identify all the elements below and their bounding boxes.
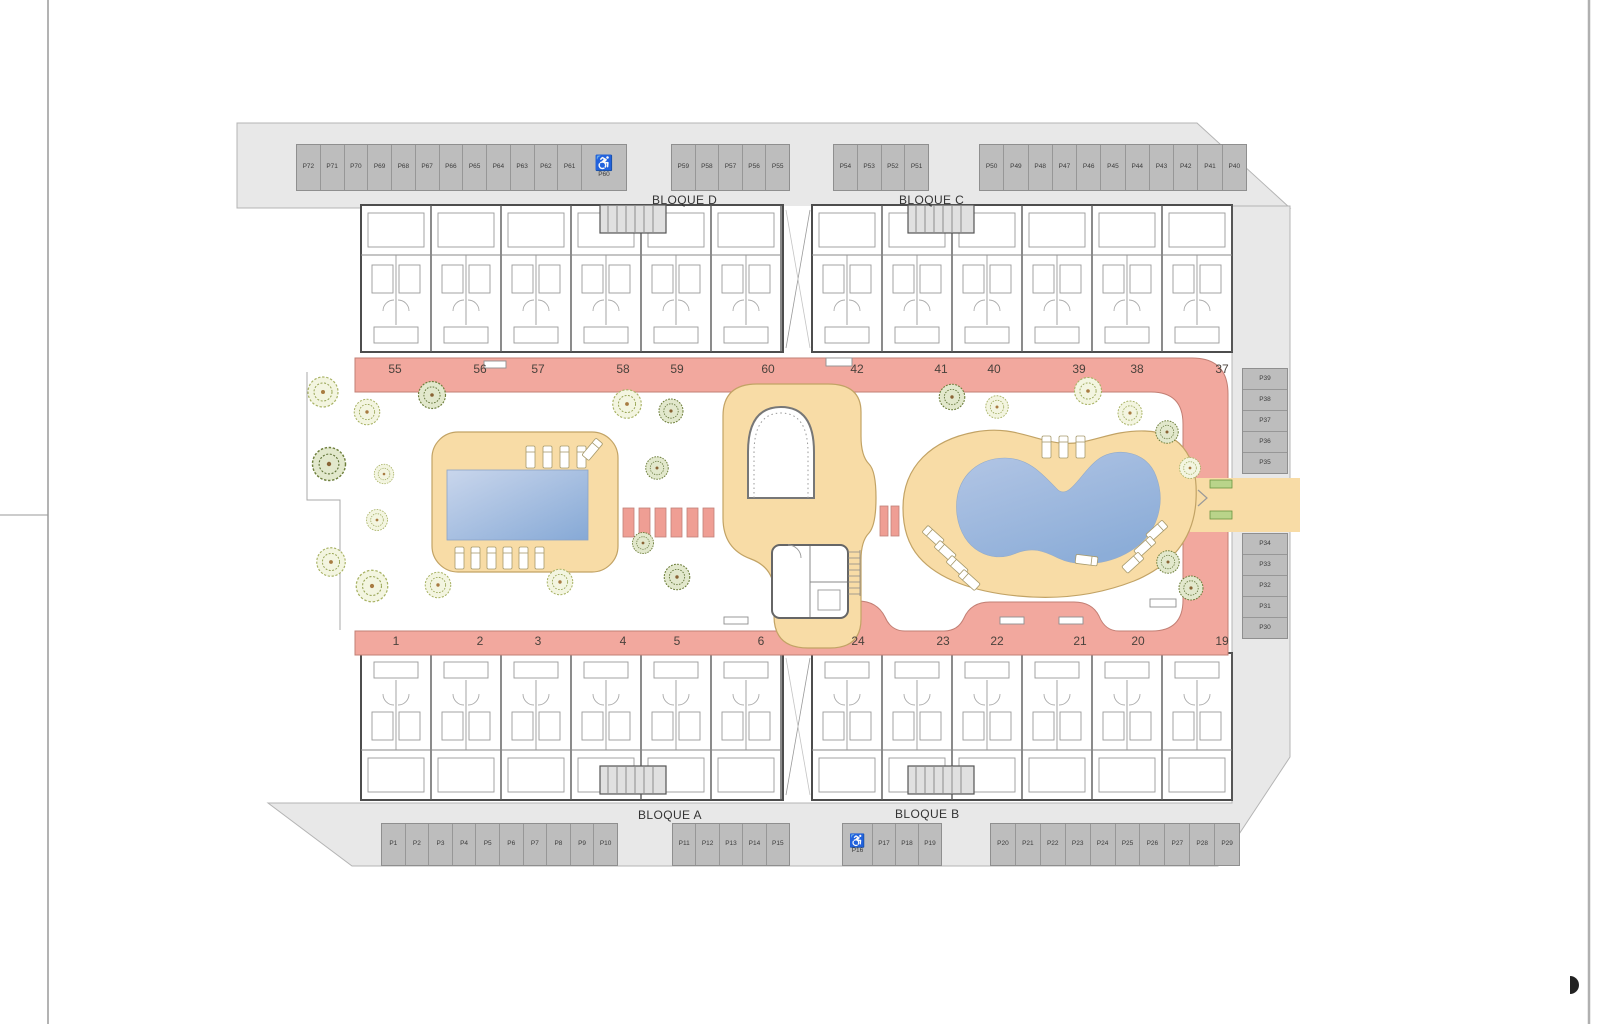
parking-stall: P34 — [1243, 534, 1287, 555]
parking-group-right-lower: P34P33P32P31P30 — [1242, 533, 1288, 639]
block-label-bloque-c: BLOQUE C — [899, 193, 964, 207]
parking-group-right-upper: P39P38P37P36P35 — [1242, 368, 1288, 474]
parking-stall-label: P72 — [303, 164, 315, 171]
parking-stall: P67 — [416, 145, 440, 190]
unit-number: 19 — [1207, 634, 1237, 648]
parking-stall-label: P8 — [554, 841, 562, 848]
parking-stall: P31 — [1243, 597, 1287, 618]
parking-stall: P49 — [1004, 145, 1028, 190]
unit-number: 39 — [1064, 362, 1094, 376]
parking-stall-label: P29 — [1221, 841, 1233, 848]
parking-stall-label: P46 — [1083, 164, 1095, 171]
parking-stall: P28 — [1190, 824, 1215, 865]
tree-icon — [939, 384, 965, 410]
wheelchair-icon: ♿ — [595, 156, 614, 171]
tree-icon — [1179, 576, 1203, 600]
parking-stall: P38 — [1243, 390, 1287, 411]
parking-stall: P32 — [1243, 576, 1287, 597]
parking-stall-label: P14 — [749, 841, 761, 848]
parking-stall-label: P26 — [1147, 841, 1159, 848]
parking-group-top-right: P50P49P48P47P46P45P44P43P42P41P40 — [979, 144, 1247, 191]
parking-stall: P29 — [1215, 824, 1239, 865]
parking-stall-label: P33 — [1259, 562, 1271, 569]
parking-stall-label: P63 — [516, 164, 528, 171]
tree-icon — [374, 464, 394, 484]
pool-house — [772, 545, 860, 618]
tree-icon — [547, 569, 573, 595]
unit-number: 1 — [381, 634, 411, 648]
parking-stall: P53 — [858, 145, 882, 190]
building-bloque-a — [361, 653, 783, 800]
unit-number: 5 — [662, 634, 692, 648]
parking-group-bottom-right: P20P21P22P23P24P25P26P27P28P29 — [990, 823, 1240, 866]
parking-stall-handicap: ♿ P60 — [581, 145, 626, 190]
planter — [1210, 480, 1232, 488]
parking-stall-label: P38 — [1259, 397, 1271, 404]
tree-icon — [1157, 551, 1180, 574]
parking-group-bottom-handicap: ♿ P16 P17P18P19 — [842, 823, 942, 866]
parking-stall-label: P52 — [887, 164, 899, 171]
unit-number: 59 — [662, 362, 692, 376]
tree-icon — [1118, 401, 1142, 425]
parking-stall-label: P55 — [772, 164, 784, 171]
parking-stall-label: P7 — [531, 841, 539, 848]
right-pool-area — [903, 430, 1196, 597]
unit-number: 23 — [928, 634, 958, 648]
parking-stall-label: P53 — [863, 164, 875, 171]
parking-stall-label: P34 — [1259, 541, 1271, 548]
parking-stall: P20 — [991, 824, 1016, 865]
left-pool-area — [432, 432, 618, 572]
stair-core-bloque-b — [908, 766, 974, 794]
parking-stall-label: P17 — [878, 841, 890, 848]
parking-group-top-mid2: P54P53P52P51 — [833, 144, 929, 191]
parking-stall: P23 — [1066, 824, 1091, 865]
parking-stall: P30 — [1243, 618, 1287, 638]
parking-stall-label: P10 — [600, 841, 612, 848]
passage-bottom — [784, 655, 811, 798]
parking-stall: P12 — [696, 824, 719, 865]
unit-number: 24 — [843, 634, 873, 648]
parking-stall: P26 — [1140, 824, 1165, 865]
parking-stall-label: P70 — [350, 164, 362, 171]
parking-stall: P33 — [1243, 555, 1287, 576]
wheelchair-icon: ♿ — [849, 834, 865, 847]
unit-number: 21 — [1065, 634, 1095, 648]
site-plan-drawing — [0, 0, 1600, 1024]
parking-stall-label: P5 — [484, 841, 492, 848]
stair-core-bloque-d — [600, 205, 666, 233]
unit-number: 6 — [746, 634, 776, 648]
parking-stall-label: P9 — [578, 841, 586, 848]
tree-icon — [646, 457, 669, 480]
parking-stall: P63 — [511, 145, 535, 190]
tree-icon — [313, 448, 346, 481]
unit-number: 57 — [523, 362, 553, 376]
parking-stall-label: P2 — [413, 841, 421, 848]
parking-stall: P59 — [672, 145, 696, 190]
parking-stall-label: P42 — [1180, 164, 1192, 171]
parking-stall: P37 — [1243, 411, 1287, 432]
site-plan: P72P71P70P69P68P67P66P65P64P63P62P61 ♿ P… — [0, 0, 1600, 1024]
parking-stall: P14 — [743, 824, 766, 865]
tree-icon — [633, 533, 654, 554]
parking-stall-label: P43 — [1156, 164, 1168, 171]
parking-stall: P52 — [882, 145, 906, 190]
parking-stall: P71 — [321, 145, 345, 190]
site-boundary-left — [307, 372, 340, 630]
parking-stall: P62 — [535, 145, 559, 190]
parking-stall: P68 — [392, 145, 416, 190]
tree-icon — [1156, 421, 1179, 444]
parking-stall-label: P30 — [1259, 625, 1271, 632]
parking-group-top-left: P72P71P70P69P68P67P66P65P64P63P62P61 ♿ P… — [296, 144, 627, 191]
page-nav-marker[interactable] — [1570, 976, 1579, 994]
parking-stall-label: P6 — [507, 841, 515, 848]
parking-stall: P15 — [767, 824, 789, 865]
parking-stall-label: P44 — [1131, 164, 1143, 171]
parking-stall: P6 — [500, 824, 524, 865]
tree-icon — [1180, 458, 1201, 479]
parking-stall-label: P20 — [997, 841, 1009, 848]
tree-icon — [367, 510, 388, 531]
parking-stall-label: P49 — [1010, 164, 1022, 171]
parking-stall: P42 — [1174, 145, 1198, 190]
parking-stall-label: P68 — [398, 164, 410, 171]
parking-stall: P4 — [453, 824, 477, 865]
parking-stall: P36 — [1243, 432, 1287, 453]
unit-number: 20 — [1123, 634, 1153, 648]
parking-stall: P3 — [429, 824, 453, 865]
unit-number: 60 — [753, 362, 783, 376]
tree-icon — [308, 377, 338, 407]
parking-stall: P72 — [297, 145, 321, 190]
parking-stall-label: P58 — [701, 164, 713, 171]
parking-stall-label: P11 — [679, 841, 690, 848]
parking-stall: P55 — [766, 145, 789, 190]
parking-stall: P66 — [440, 145, 464, 190]
stair-core-bloque-a — [600, 766, 666, 794]
entrance-drive — [1190, 478, 1300, 532]
stair-core-bloque-c — [908, 205, 974, 233]
unit-number: 2 — [465, 634, 495, 648]
tree-icon — [1075, 378, 1102, 405]
parking-stall: P65 — [463, 145, 487, 190]
parking-stall-label: P41 — [1204, 164, 1216, 171]
unit-number: 55 — [380, 362, 410, 376]
parking-stall-label: P25 — [1122, 841, 1134, 848]
parking-stall-label: P69 — [374, 164, 386, 171]
parking-stall: P1 — [382, 824, 406, 865]
parking-stall: P69 — [368, 145, 392, 190]
parking-stall-label: P31 — [1259, 604, 1271, 611]
parking-stall-label: P71 — [326, 164, 338, 171]
parking-group-top-mid1: P59P58P57P56P55 — [671, 144, 790, 191]
block-label-bloque-b: BLOQUE B — [895, 807, 960, 821]
parking-stall-label: P18 — [901, 841, 913, 848]
parking-stall: P8 — [547, 824, 571, 865]
parking-group-bottom-left: P1P2P3P4P5P6P7P8P9P10 — [381, 823, 618, 866]
parking-stall-label: P27 — [1172, 841, 1184, 848]
building-bloque-d — [361, 205, 783, 352]
parking-stall: P5 — [476, 824, 500, 865]
parking-stall-label: P51 — [911, 164, 923, 171]
parking-stall-label: P57 — [725, 164, 737, 171]
parking-stall: P35 — [1243, 453, 1287, 473]
parking-stall-label: P4 — [460, 841, 468, 848]
parking-stall-label: P50 — [986, 164, 998, 171]
arch-structure — [748, 407, 814, 498]
parking-stall: P11 — [673, 824, 696, 865]
tree-icon — [664, 564, 690, 590]
parking-stall-label: P40 — [1229, 164, 1241, 171]
parking-stall-label: P36 — [1259, 439, 1271, 446]
parking-stall: P56 — [743, 145, 767, 190]
parking-stall-label: P32 — [1259, 583, 1271, 590]
parking-stall: P17 — [873, 824, 896, 865]
unit-number: 40 — [979, 362, 1009, 376]
parking-stall: P46 — [1077, 145, 1101, 190]
parking-stall-label: P65 — [469, 164, 481, 171]
parking-stall-handicap: ♿ P16 — [843, 824, 873, 865]
parking-stall-label: P66 — [445, 164, 457, 171]
parking-stall-label: P37 — [1259, 418, 1271, 425]
parking-stall-label: P19 — [924, 841, 936, 848]
tree-icon — [986, 396, 1009, 419]
parking-stall-label: P56 — [748, 164, 760, 171]
parking-stall-label: P3 — [437, 841, 445, 848]
stepping-stones-right — [880, 506, 899, 536]
parking-stall-label: P64 — [493, 164, 505, 171]
parking-stall: P10 — [594, 824, 617, 865]
tree-icon — [317, 548, 346, 577]
block-label-bloque-a: BLOQUE A — [638, 808, 702, 822]
unit-number: 42 — [842, 362, 872, 376]
parking-stall-label: P62 — [540, 164, 552, 171]
tree-icon — [659, 399, 683, 423]
parking-stall-label: P45 — [1107, 164, 1119, 171]
parking-stall-label: P61 — [564, 164, 576, 171]
parking-group-bottom-mid: P11P12P13P14P15 — [672, 823, 790, 866]
tree-icon — [356, 570, 388, 602]
parking-stall: P61 — [558, 145, 581, 190]
parking-stall: P25 — [1116, 824, 1141, 865]
parking-stall: P7 — [524, 824, 548, 865]
unit-number: 3 — [523, 634, 553, 648]
unit-number: 37 — [1207, 362, 1237, 376]
parking-stall-label: P67 — [421, 164, 433, 171]
parking-stall-label: P47 — [1059, 164, 1071, 171]
building-bloque-c — [812, 205, 1232, 352]
parking-stall: P2 — [406, 824, 430, 865]
parking-stall: P64 — [487, 145, 511, 190]
parking-stall-label: P1 — [389, 841, 397, 848]
parking-stall: P47 — [1053, 145, 1077, 190]
parking-stall: P54 — [834, 145, 858, 190]
parking-stall: P50 — [980, 145, 1004, 190]
left-pool — [447, 470, 588, 540]
parking-stall-label: P21 — [1022, 841, 1034, 848]
parking-stall: P40 — [1223, 145, 1246, 190]
unit-number: 22 — [982, 634, 1012, 648]
parking-stall: P41 — [1198, 145, 1222, 190]
parking-stall-label: P24 — [1097, 841, 1109, 848]
parking-stall: P27 — [1165, 824, 1190, 865]
parking-stall-label: P35 — [1259, 460, 1271, 467]
parking-stall: P39 — [1243, 369, 1287, 390]
parking-stall: P22 — [1041, 824, 1066, 865]
parking-stall-label: P12 — [702, 841, 714, 848]
planter — [1210, 511, 1232, 519]
tree-icon — [419, 382, 446, 409]
parking-stall: P21 — [1016, 824, 1041, 865]
parking-stall: P51 — [905, 145, 928, 190]
parking-stall: P58 — [696, 145, 720, 190]
parking-stall: P19 — [919, 824, 941, 865]
parking-stall-label: P28 — [1196, 841, 1208, 848]
parking-stall: P43 — [1150, 145, 1174, 190]
parking-stall: P70 — [345, 145, 369, 190]
parking-stall-label: P23 — [1072, 841, 1084, 848]
unit-number: 56 — [465, 362, 495, 376]
tree-icon — [354, 399, 380, 425]
unit-number: 4 — [608, 634, 638, 648]
parking-stall-label: P48 — [1034, 164, 1046, 171]
parking-stall-label: P60 — [598, 172, 610, 179]
parking-stall: P13 — [720, 824, 743, 865]
parking-stall: P9 — [571, 824, 595, 865]
parking-stall-label: P13 — [725, 841, 737, 848]
block-label-bloque-d: BLOQUE D — [652, 193, 717, 207]
parking-stall: P45 — [1101, 145, 1125, 190]
parking-stall: P18 — [896, 824, 919, 865]
unit-number: 58 — [608, 362, 638, 376]
parking-stall-label: P16 — [852, 848, 864, 855]
passage-top — [784, 206, 811, 351]
parking-stall-label: P15 — [772, 841, 784, 848]
parking-stall: P57 — [719, 145, 743, 190]
unit-number: 41 — [926, 362, 956, 376]
parking-stall-label: P22 — [1047, 841, 1059, 848]
unit-number: 38 — [1122, 362, 1152, 376]
parking-stall-label: P39 — [1259, 376, 1271, 383]
parking-stall: P44 — [1126, 145, 1150, 190]
tree-icon — [425, 572, 451, 598]
building-bloque-b — [812, 653, 1232, 800]
parking-stall-label: P54 — [840, 164, 852, 171]
parking-stall: P24 — [1091, 824, 1116, 865]
tree-icon — [613, 390, 642, 419]
parking-stall: P48 — [1029, 145, 1053, 190]
stepping-stones-left — [623, 508, 714, 537]
parking-stall-label: P59 — [678, 164, 690, 171]
